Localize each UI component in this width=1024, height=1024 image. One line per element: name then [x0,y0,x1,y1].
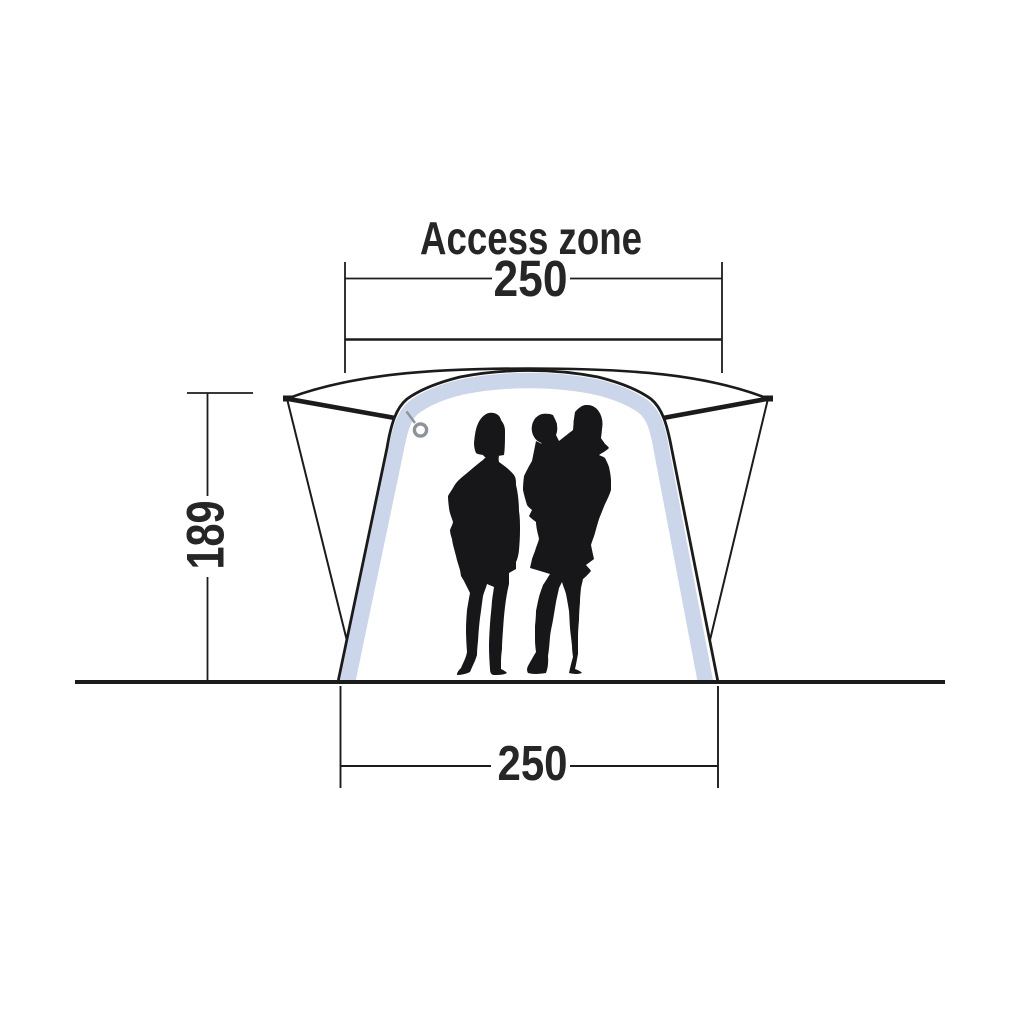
svg-text:250: 250 [494,250,568,307]
svg-text:189: 189 [177,501,236,570]
svg-text:250: 250 [498,737,568,791]
